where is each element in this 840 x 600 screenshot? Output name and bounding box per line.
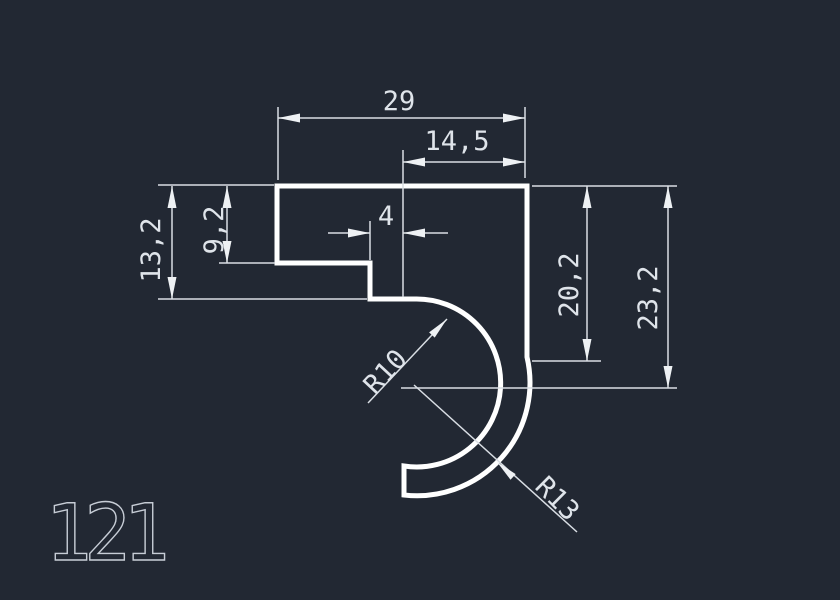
dim-left-height-label: 13,2	[136, 217, 167, 282]
dim-top-right-width-label: 14,5	[424, 126, 489, 157]
dim-right-overall-height-label: 23,2	[633, 265, 664, 330]
dim-right-inner-height-label: 20,2	[554, 252, 585, 317]
dim-left-inner-height-label: 9,2	[199, 206, 230, 255]
cad-drawing-canvas: 29 14,5 13,2 9,2 4	[0, 0, 840, 600]
dim-step-width-label: 4	[378, 201, 394, 232]
part-number-label: 121	[45, 489, 165, 579]
dim-overall-width-label: 29	[383, 86, 416, 117]
